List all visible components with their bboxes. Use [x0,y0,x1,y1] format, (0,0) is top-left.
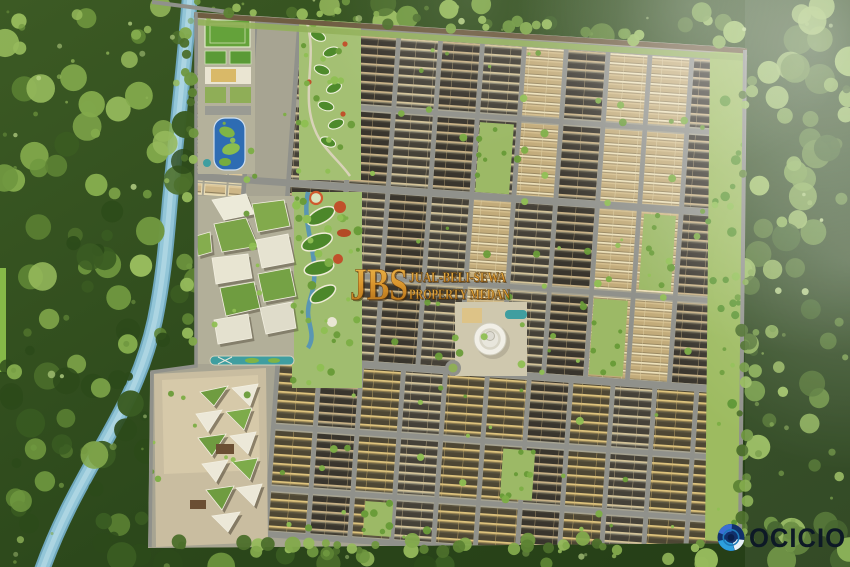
park-accent [334,201,346,213]
masterplan-aerial-view: JBS JBS JUAL-BELI-SEWA JUAL-BELI-SEWA PR… [0,0,850,567]
ocicio-logo-text: OCICIO [749,523,846,553]
courtyard [190,500,206,509]
park-accent [333,254,343,264]
green-pad [205,87,226,103]
community-pool [505,310,527,319]
clubhouse-building [252,200,290,232]
pool-island [219,158,231,166]
clubhouse-building [258,268,296,302]
park-accent [337,229,351,237]
ocicio-logo: OCICIO [718,523,847,553]
clubhouse-building [260,302,296,334]
clubhouse-building [256,234,294,268]
roundabout-green [449,364,458,373]
park-pavilion [327,317,337,327]
ocicio-swirl-icon [718,524,745,551]
spa-pool [203,159,211,167]
masterplan-scene: JBS JBS JUAL-BELI-SEWA JUAL-BELI-SEWA PR… [0,0,850,567]
pool-island [268,358,280,363]
green-pad [230,87,251,103]
sand-court [211,69,236,82]
park-ring-feature [310,192,322,204]
watermark-line2: PROPERTY MEDAN [409,287,510,303]
sport-court [205,51,226,64]
park-accent [340,111,345,116]
sport-court [230,51,251,64]
pool-island [245,358,259,363]
clubhouse-building [196,232,212,256]
courtyard [216,444,234,454]
watermark-line1: JUAL-BELI-SEWA [409,270,506,286]
parking-lot [205,106,251,115]
community-court [462,308,482,323]
watermark-brand: JBS [350,259,408,310]
